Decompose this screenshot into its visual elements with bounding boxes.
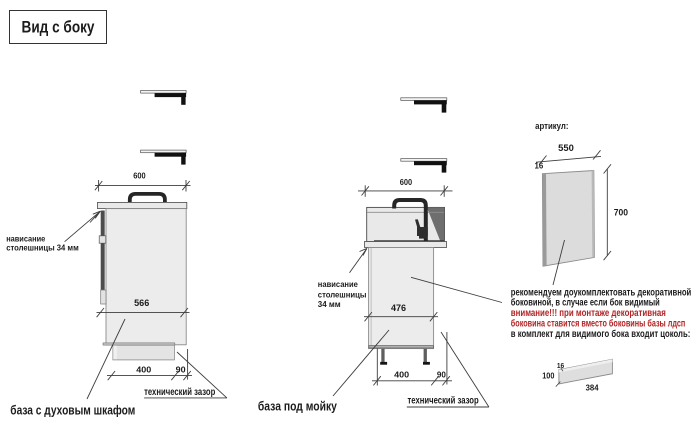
- svg-text:в комплект для видимого бока в: в комплект для видимого бока входит цоко…: [511, 329, 691, 340]
- svg-text:рекомендуем доукомплектовать д: рекомендуем доукомплектовать декоративно…: [511, 287, 692, 298]
- svg-text:90: 90: [176, 365, 186, 375]
- svg-text:34 мм: 34 мм: [318, 299, 341, 309]
- svg-text:нависание: нависание: [318, 279, 358, 289]
- svg-text:600: 600: [133, 171, 146, 181]
- svg-text:600: 600: [400, 177, 413, 187]
- svg-text:550: 550: [558, 143, 574, 153]
- svg-text:боковиной, в случае если бок в: боковиной, в случае если бок видимый: [511, 298, 660, 309]
- svg-text:700: 700: [614, 208, 628, 218]
- svg-text:артикул:: артикул:: [535, 121, 568, 132]
- svg-text:476: 476: [391, 303, 406, 314]
- svg-text:400: 400: [394, 370, 409, 380]
- svg-text:боковина ставится вместо боков: боковина ставится вместо боковины базы л…: [511, 319, 686, 330]
- svg-text:16: 16: [557, 361, 564, 370]
- svg-text:100: 100: [542, 371, 554, 381]
- svg-text:технический зазор: технический зазор: [144, 387, 215, 398]
- svg-text:технический зазор: технический зазор: [408, 396, 479, 407]
- svg-text:16: 16: [535, 160, 544, 170]
- svg-text:внимание!!! при монтаже декора: внимание!!! при монтаже декоративная: [511, 308, 666, 319]
- svg-text:столешницы 34 мм: столешницы 34 мм: [6, 243, 79, 253]
- svg-text:база под мойку: база под мойку: [258, 398, 338, 413]
- svg-text:384: 384: [586, 382, 599, 392]
- svg-text:столешницы: столешницы: [318, 290, 367, 300]
- svg-text:Вид с боку: Вид с боку: [22, 18, 95, 37]
- svg-text:база с духовым шкафом: база с духовым шкафом: [10, 403, 135, 418]
- svg-text:400: 400: [136, 365, 151, 375]
- svg-text:566: 566: [134, 298, 149, 309]
- svg-text:90: 90: [437, 370, 446, 380]
